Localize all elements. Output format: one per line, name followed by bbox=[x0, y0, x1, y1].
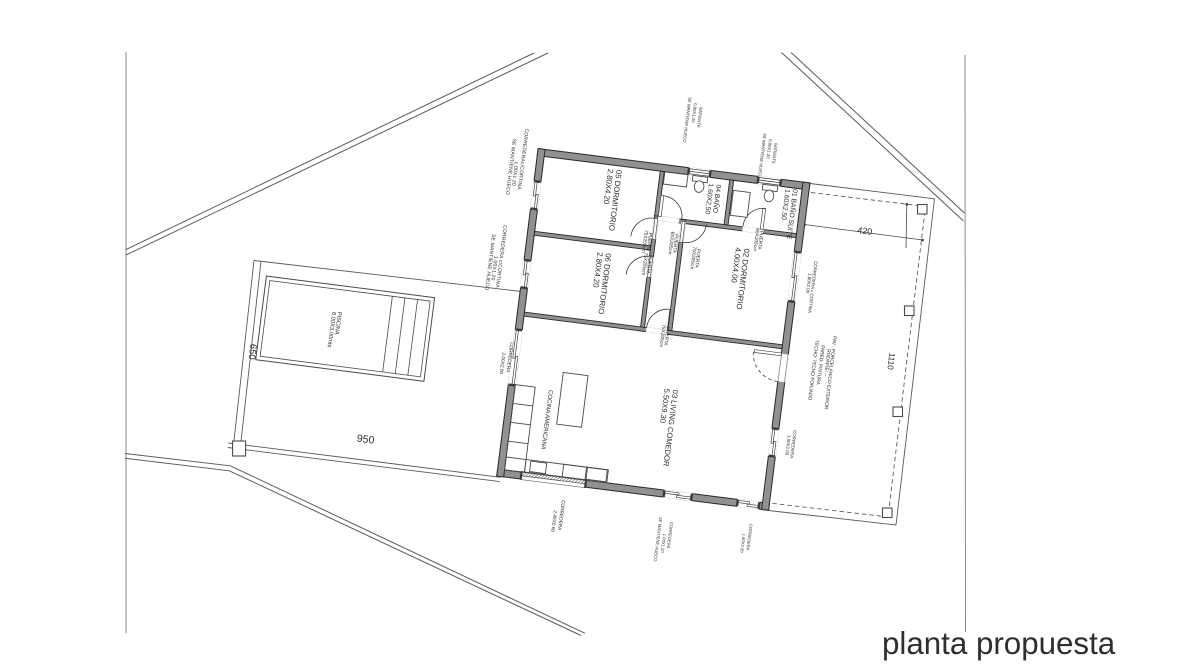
svg-text:420: 420 bbox=[857, 225, 873, 237]
svg-text:planta propuesta: planta propuesta bbox=[882, 626, 1116, 661]
svg-text:950: 950 bbox=[356, 433, 375, 447]
